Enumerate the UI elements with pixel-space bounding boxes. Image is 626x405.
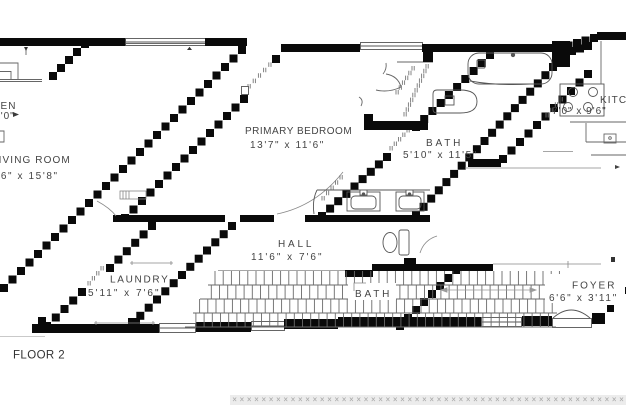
svg-text:5'11" x 7'6": 5'11" x 7'6" — [88, 288, 161, 299]
svg-text:13'7" x 11'6": 13'7" x 11'6" — [250, 140, 325, 151]
svg-text:7'0" x 9'6": 7'0" x 9'6" — [552, 106, 607, 117]
svg-text:FLOOR 2: FLOOR 2 — [13, 350, 65, 362]
svg-text:11'6" x 7'6": 11'6" x 7'6" — [251, 252, 324, 263]
svg-text:LIVING ROOM: LIVING ROOM — [0, 155, 71, 166]
svg-text:LAUNDRY: LAUNDRY — [110, 275, 170, 286]
svg-text:PRIMARY BEDROOM: PRIMARY BEDROOM — [245, 126, 352, 137]
svg-text:HALL: HALL — [278, 239, 314, 250]
svg-text:5'10" x 11'5": 5'10" x 11'5" — [403, 150, 478, 161]
svg-text:6'6" x 3'11": 6'6" x 3'11" — [549, 293, 618, 304]
svg-text:KITCHEN: KITCHEN — [600, 95, 626, 106]
svg-text:7'0" x 9'0": 7'0" x 9'0" — [0, 111, 15, 122]
svg-text:BATH: BATH — [426, 138, 463, 149]
svg-text:BATH: BATH — [355, 289, 392, 300]
svg-text:FOYER: FOYER — [572, 281, 616, 292]
svg-text:17'6" x 15'8": 17'6" x 15'8" — [0, 171, 59, 182]
